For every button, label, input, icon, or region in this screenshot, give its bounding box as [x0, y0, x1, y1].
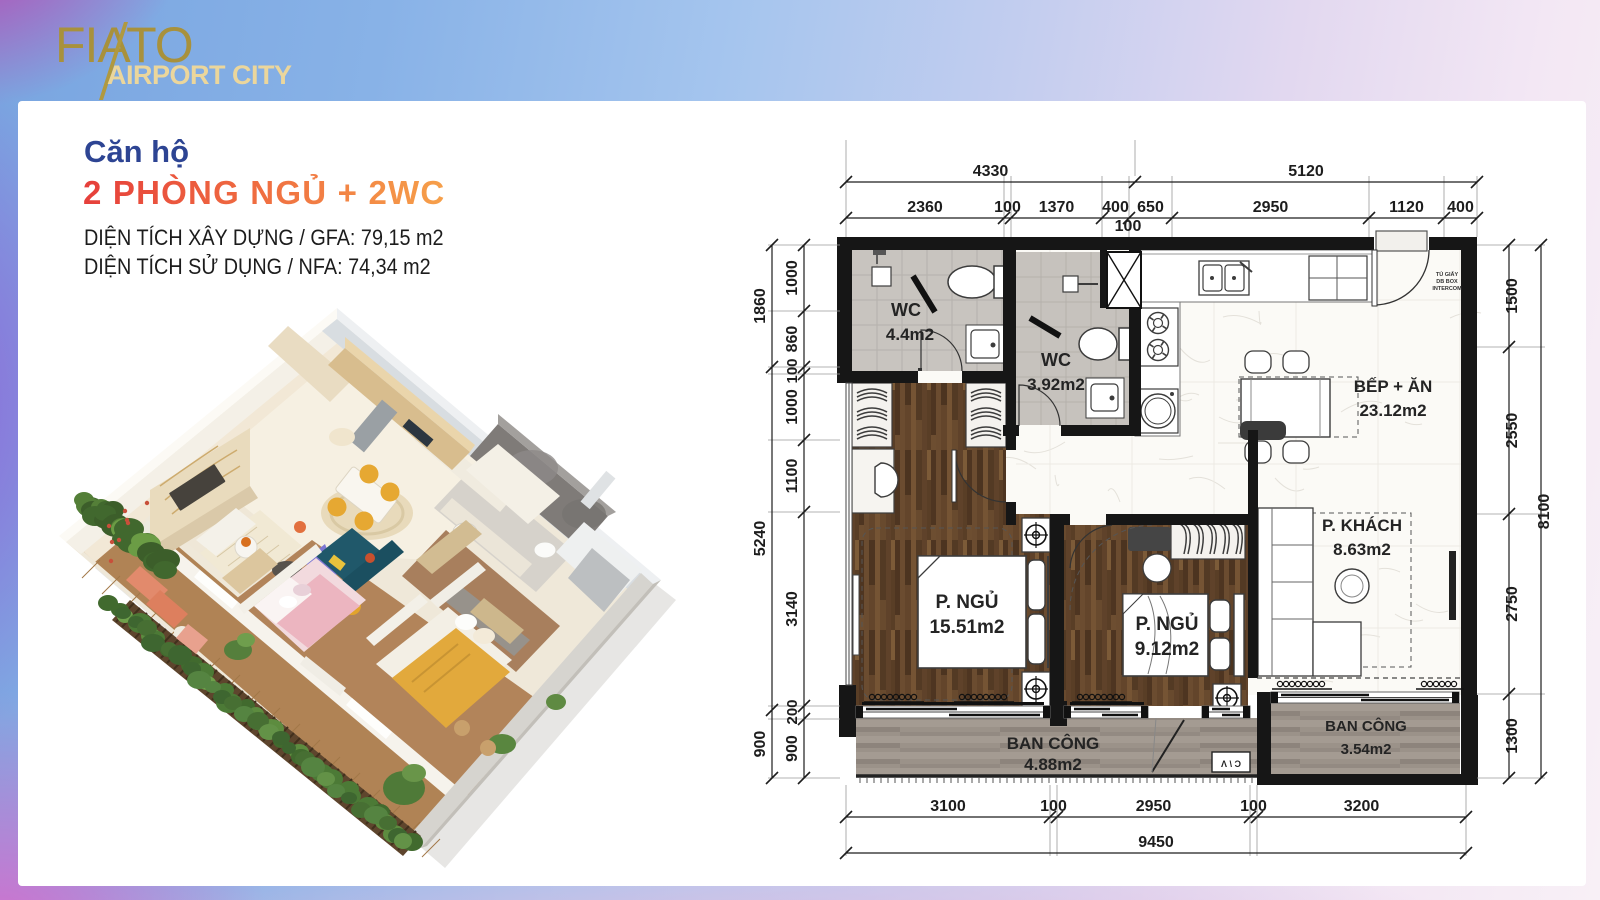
svg-text:3.54m2: 3.54m2: [1341, 741, 1392, 758]
svg-text:2360: 2360: [907, 199, 943, 216]
svg-text:3100: 3100: [930, 798, 966, 815]
svg-text:BAN CÔNG: BAN CÔNG: [1007, 734, 1100, 753]
svg-text:200: 200: [784, 699, 801, 724]
svg-text:100: 100: [1240, 798, 1267, 815]
svg-text:9.12m2: 9.12m2: [1135, 639, 1199, 660]
svg-text:WC: WC: [1041, 350, 1071, 370]
svg-text:1500: 1500: [1504, 278, 1521, 314]
svg-text:15.51m2: 15.51m2: [929, 617, 1004, 638]
svg-text:1120: 1120: [1389, 199, 1424, 216]
svg-text:400: 400: [1102, 199, 1129, 216]
svg-text:4330: 4330: [973, 163, 1009, 180]
svg-text:P. NGỦ: P. NGỦ: [1135, 613, 1198, 635]
svg-text:1000: 1000: [784, 260, 801, 296]
svg-text:100: 100: [784, 358, 801, 383]
svg-text:BẾP + ĂN: BẾP + ĂN: [1354, 377, 1433, 396]
svg-text:3.92m2: 3.92m2: [1027, 375, 1085, 394]
svg-text:860: 860: [784, 326, 801, 353]
svg-text:TỦ GIẤY: TỦ GIẤY: [1436, 271, 1459, 278]
svg-text:Ʌ \ Ɔ: Ʌ \ Ɔ: [1221, 759, 1242, 769]
svg-text:3200: 3200: [1344, 798, 1380, 815]
svg-text:400: 400: [1447, 199, 1474, 216]
svg-text:2950: 2950: [1136, 798, 1172, 815]
svg-text:8100: 8100: [1536, 494, 1553, 530]
svg-text:8.63m2: 8.63m2: [1333, 540, 1391, 559]
svg-text:P. NGỦ: P. NGỦ: [935, 591, 998, 613]
svg-text:100: 100: [994, 199, 1021, 216]
svg-text:P. KHÁCH: P. KHÁCH: [1322, 516, 1402, 535]
svg-text:1000: 1000: [784, 389, 801, 425]
svg-text:23.12m2: 23.12m2: [1359, 401, 1426, 420]
svg-text:100: 100: [1115, 218, 1142, 235]
svg-text:9450: 9450: [1138, 834, 1174, 851]
svg-text:2550: 2550: [1504, 413, 1521, 449]
svg-text:WC: WC: [891, 300, 921, 320]
svg-text:3140: 3140: [784, 591, 801, 627]
svg-text:900: 900: [784, 735, 801, 762]
svg-text:DB BOX: DB BOX: [1436, 279, 1458, 285]
svg-text:1300: 1300: [1504, 718, 1521, 754]
svg-text:2750: 2750: [1504, 586, 1521, 622]
svg-text:900: 900: [752, 731, 769, 758]
svg-text:INTERCOM: INTERCOM: [1432, 286, 1462, 292]
svg-text:5120: 5120: [1288, 163, 1324, 180]
svg-text:2950: 2950: [1253, 199, 1289, 216]
svg-text:4.4m2: 4.4m2: [886, 325, 934, 344]
svg-text:5240: 5240: [752, 521, 769, 557]
svg-text:650: 650: [1137, 199, 1164, 216]
svg-text:1370: 1370: [1039, 199, 1075, 216]
svg-text:BAN CÔNG: BAN CÔNG: [1325, 717, 1407, 735]
svg-text:1860: 1860: [752, 288, 769, 324]
svg-text:100: 100: [1040, 798, 1067, 815]
svg-text:1100: 1100: [784, 459, 801, 494]
svg-text:4.88m2: 4.88m2: [1024, 755, 1082, 774]
